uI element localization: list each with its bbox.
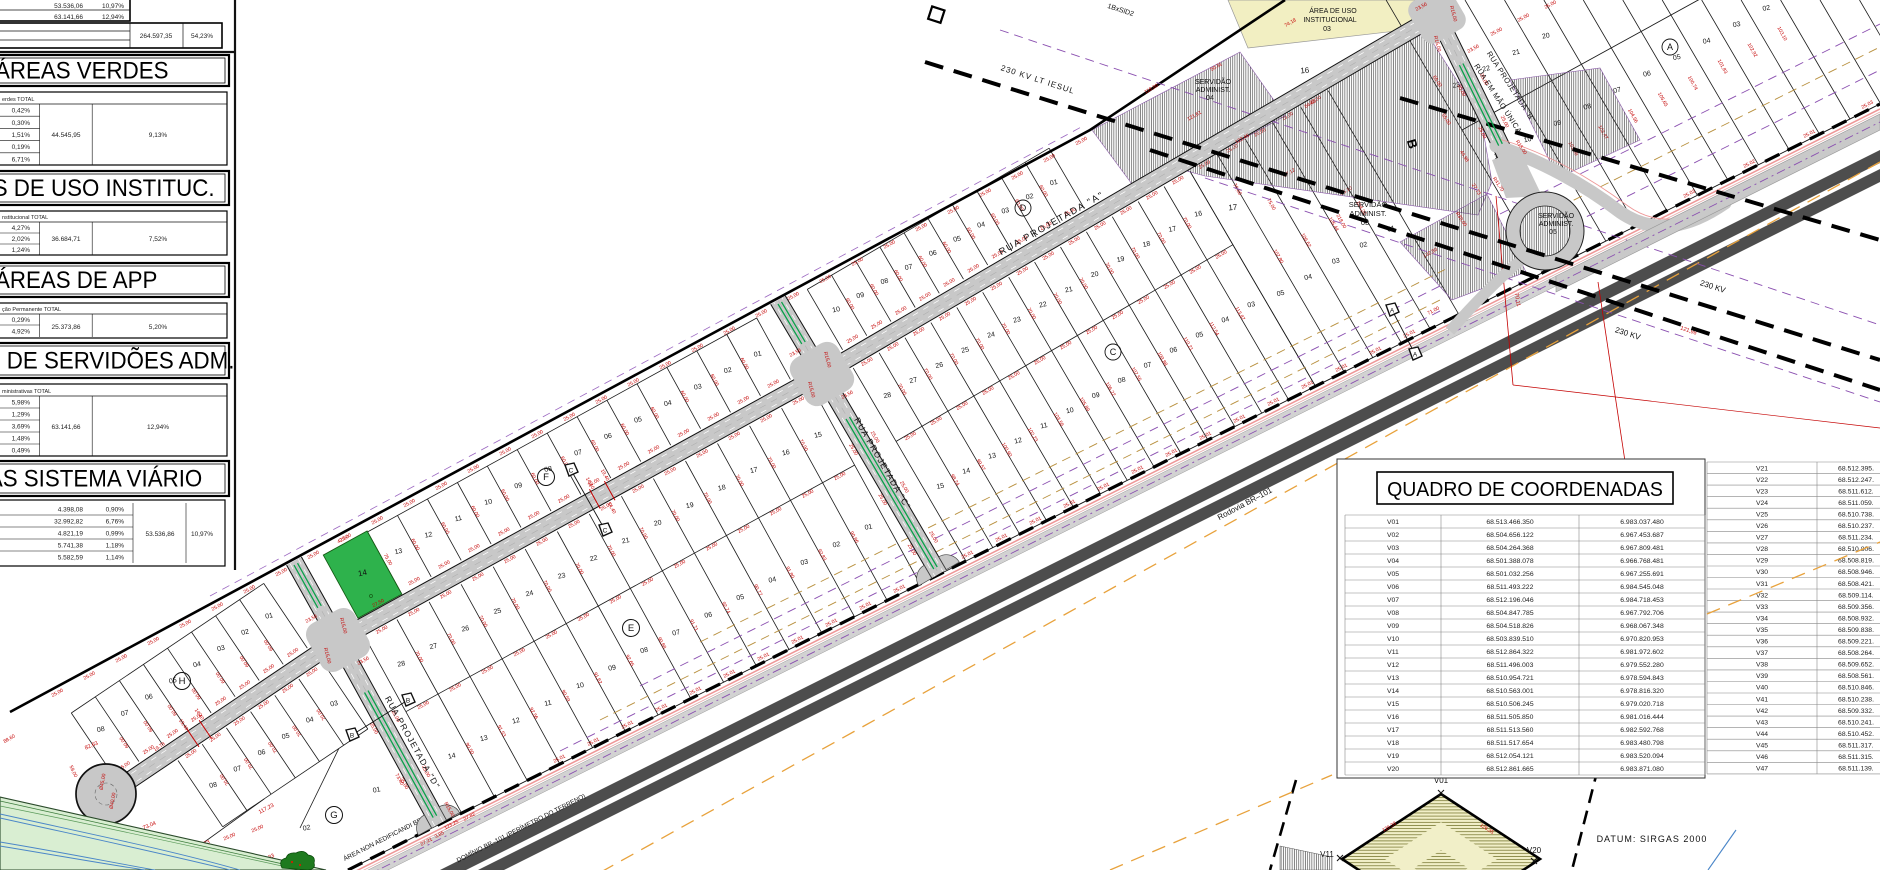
svg-text:32.992,82: 32.992,82: [54, 519, 83, 526]
svg-text:6.968.067.348: 6.968.067.348: [1620, 623, 1664, 630]
svg-text:6.966.768.481: 6.966.768.481: [1620, 558, 1664, 565]
svg-text:05: 05: [1549, 229, 1557, 236]
svg-text:DATUM: SIRGAS 2000: DATUM: SIRGAS 2000: [1597, 834, 1708, 844]
svg-text:6.978.594.843: 6.978.594.843: [1620, 675, 1664, 682]
svg-text:264.597,35: 264.597,35: [140, 33, 173, 40]
svg-text:11: 11: [544, 700, 553, 708]
svg-text:68.512.395.: 68.512.395.: [1838, 465, 1874, 472]
svg-text:68.508.264.: 68.508.264.: [1838, 650, 1874, 657]
svg-text:5.741,38: 5.741,38: [58, 543, 84, 550]
svg-text:68.508.946.: 68.508.946.: [1838, 569, 1874, 576]
svg-text:V03: V03: [1387, 545, 1399, 552]
svg-text:68.512.247.: 68.512.247.: [1838, 477, 1874, 484]
svg-text:ADMINIST.: ADMINIST.: [1349, 209, 1386, 218]
svg-text:68.509.221.: 68.509.221.: [1838, 639, 1874, 646]
svg-text:68.510.954.721: 68.510.954.721: [1486, 675, 1533, 682]
svg-text:V27: V27: [1756, 535, 1768, 542]
svg-text:68.511.496.003: 68.511.496.003: [1487, 662, 1534, 669]
svg-text:68.512.054.121: 68.512.054.121: [1486, 753, 1533, 760]
svg-text:25.373,86: 25.373,86: [52, 324, 81, 331]
svg-text:3,69%: 3,69%: [12, 424, 31, 431]
svg-text:nstitucional TOTAL: nstitucional TOTAL: [2, 215, 48, 221]
svg-text:68.508.561.: 68.508.561.: [1838, 673, 1874, 680]
svg-text:C: C: [603, 528, 608, 535]
svg-text:ministrativas TOTAL: ministrativas TOTAL: [2, 389, 51, 395]
svg-text:68.511.315.: 68.511.315.: [1838, 754, 1874, 761]
svg-text:6.982.592.768: 6.982.592.768: [1620, 727, 1664, 734]
svg-text:V39: V39: [1756, 673, 1768, 680]
svg-text:QUADRO DE COORDENADAS: QUADRO DE COORDENADAS: [1387, 479, 1663, 502]
svg-text:V02: V02: [1387, 532, 1399, 539]
svg-text:B: B: [350, 733, 354, 740]
svg-text:6.979.552.280: 6.979.552.280: [1620, 662, 1664, 669]
svg-text:6.967.453.687: 6.967.453.687: [1620, 532, 1664, 539]
svg-text:10,97%: 10,97%: [191, 531, 213, 538]
svg-text:V26: V26: [1756, 523, 1768, 530]
svg-text:V06: V06: [1387, 584, 1399, 591]
svg-text:V37: V37: [1756, 650, 1768, 657]
svg-text:0,99%: 0,99%: [106, 531, 125, 538]
svg-text:V46: V46: [1756, 754, 1768, 761]
svg-text:V10: V10: [1387, 636, 1399, 643]
svg-text:ADMINIST.: ADMINIST.: [1196, 87, 1231, 94]
svg-text:68.508.421.: 68.508.421.: [1838, 581, 1874, 588]
svg-text:G: G: [330, 810, 337, 821]
svg-text:68.511.234.: 68.511.234.: [1838, 535, 1874, 542]
svg-text:V07: V07: [1387, 597, 1399, 604]
svg-text:16: 16: [1300, 66, 1310, 76]
svg-text:V35: V35: [1756, 627, 1768, 634]
svg-text:V05: V05: [1387, 571, 1399, 578]
svg-text:V16: V16: [1387, 714, 1399, 721]
svg-text:68.510.738.: 68.510.738.: [1838, 512, 1874, 519]
svg-text:53.536,06: 53.536,06: [54, 3, 83, 10]
svg-text:V47: V47: [1756, 766, 1768, 773]
svg-text:36.684,71: 36.684,71: [52, 236, 81, 243]
svg-text:9,13%: 9,13%: [149, 132, 168, 139]
svg-text:6.967.792.706: 6.967.792.706: [1620, 610, 1664, 617]
svg-text:A: A: [1667, 42, 1673, 52]
svg-text:0,42%: 0,42%: [12, 108, 31, 115]
svg-text:C: C: [569, 468, 574, 475]
svg-text:68.510.238.: 68.510.238.: [1838, 696, 1874, 703]
svg-text:44.545,95: 44.545,95: [52, 132, 81, 139]
svg-text:V08: V08: [1387, 610, 1399, 617]
svg-text:ção Permanente TOTAL: ção Permanente TOTAL: [2, 307, 61, 313]
svg-text:ÁREAS DE APP: ÁREAS DE APP: [0, 266, 157, 293]
svg-text:D: D: [1020, 203, 1027, 213]
svg-text:V19: V19: [1387, 753, 1399, 760]
svg-text:V01: V01: [1387, 519, 1399, 526]
svg-text:V23: V23: [1756, 488, 1768, 495]
svg-text:53.536,86: 53.536,86: [146, 531, 175, 538]
svg-text:V20: V20: [1387, 766, 1399, 773]
svg-text:6,76%: 6,76%: [106, 519, 125, 526]
svg-text:V14: V14: [1387, 688, 1399, 695]
svg-text:F: F: [543, 472, 549, 483]
svg-text:68.511.612.: 68.511.612.: [1838, 488, 1874, 495]
svg-text:68.511.505.850: 68.511.505.850: [1487, 714, 1534, 721]
svg-text:63.141,66: 63.141,66: [54, 14, 83, 21]
svg-text:5,98%: 5,98%: [12, 400, 31, 407]
svg-text:68.511.513.560: 68.511.513.560: [1487, 727, 1534, 734]
svg-text:E: E: [628, 623, 634, 634]
svg-text:V30: V30: [1756, 569, 1768, 576]
svg-text:6.970.820.953: 6.970.820.953: [1620, 636, 1664, 643]
svg-text:V13: V13: [1387, 675, 1399, 682]
svg-text:03: 03: [1323, 26, 1331, 33]
svg-text:V31: V31: [1756, 581, 1768, 588]
svg-text:INSTITUCIONAL: INSTITUCIONAL: [1303, 17, 1356, 24]
svg-text:6.981.016.444: 6.981.016.444: [1620, 714, 1664, 721]
svg-text:68.504.264.368: 68.504.264.368: [1486, 545, 1533, 552]
svg-text:V34: V34: [1756, 615, 1768, 622]
svg-text:ADMINIST.: ADMINIST.: [1539, 221, 1574, 228]
svg-text:V36: V36: [1756, 639, 1768, 646]
svg-text:V11: V11: [1320, 850, 1334, 859]
svg-text:V25: V25: [1756, 512, 1768, 519]
svg-text:6.967.809.481: 6.967.809.481: [1620, 545, 1664, 552]
svg-text:V20: V20: [1527, 846, 1542, 855]
svg-text:10,97%: 10,97%: [102, 3, 124, 10]
svg-text:6.967.255.691: 6.967.255.691: [1620, 571, 1664, 578]
svg-text:H: H: [179, 676, 186, 687]
svg-text:54,23%: 54,23%: [191, 33, 213, 40]
svg-text:6.983.037.480: 6.983.037.480: [1620, 519, 1664, 526]
svg-text:68.508.819.: 68.508.819.: [1838, 558, 1874, 565]
svg-text:6.979.020.718: 6.979.020.718: [1620, 701, 1664, 708]
svg-text:68.510.241.: 68.510.241.: [1838, 719, 1874, 726]
svg-text:68.512.196.046: 68.512.196.046: [1486, 597, 1533, 604]
svg-text:4.398,08: 4.398,08: [58, 507, 84, 514]
svg-text:6.983.480.798: 6.983.480.798: [1620, 740, 1664, 747]
svg-text:V22: V22: [1756, 477, 1768, 484]
svg-text:V40: V40: [1756, 685, 1768, 692]
svg-text:0,30%: 0,30%: [12, 120, 31, 127]
svg-text:V44: V44: [1756, 731, 1768, 738]
svg-text:ÁREAS DE USO INSTITUC.: ÁREAS DE USO INSTITUC.: [0, 174, 215, 201]
svg-text:0,19%: 0,19%: [12, 144, 31, 151]
svg-text:6.984.718.453: 6.984.718.453: [1620, 597, 1664, 604]
svg-text:11: 11: [454, 515, 463, 523]
svg-text:ÁREAS VERDES: ÁREAS VERDES: [0, 57, 169, 84]
svg-text:68.510.563.001: 68.510.563.001: [1486, 688, 1533, 695]
svg-text:68.504.518.826: 68.504.518.826: [1486, 623, 1533, 630]
svg-text:B: B: [406, 698, 410, 705]
svg-text:SERVIDÃO: SERVIDÃO: [1349, 200, 1388, 209]
svg-text:68.511.493.222: 68.511.493.222: [1487, 584, 1534, 591]
svg-text:SERVIDÃO: SERVIDÃO: [1538, 211, 1575, 220]
svg-text:68.510.846.: 68.510.846.: [1838, 685, 1874, 692]
svg-text:04: 04: [1206, 95, 1214, 102]
svg-text:68.511.317.: 68.511.317.: [1838, 743, 1874, 750]
svg-text:V38: V38: [1756, 662, 1768, 669]
svg-text:4.821,19: 4.821,19: [58, 531, 84, 538]
svg-text:ÁREAS SISTEMA VIÁRIO: ÁREAS SISTEMA VIÁRIO: [0, 465, 202, 492]
svg-text:68.512.864.322: 68.512.864.322: [1486, 649, 1533, 656]
svg-text:7,52%: 7,52%: [149, 236, 168, 243]
svg-text:V43: V43: [1756, 719, 1768, 726]
svg-text:68.509.838.: 68.509.838.: [1838, 627, 1874, 634]
svg-text:68.510.452.: 68.510.452.: [1838, 731, 1874, 738]
svg-text:0,49%: 0,49%: [12, 448, 31, 455]
svg-text:2,02%: 2,02%: [12, 236, 31, 243]
svg-text:1,51%: 1,51%: [12, 132, 31, 139]
svg-text:68.508.932.: 68.508.932.: [1838, 615, 1874, 622]
svg-text:68.513.466.350: 68.513.466.350: [1486, 519, 1533, 526]
svg-text:erdes TOTAL: erdes TOTAL: [2, 97, 34, 103]
svg-text:68.509.114.: 68.509.114.: [1838, 592, 1874, 599]
svg-text:1,24%: 1,24%: [12, 247, 31, 254]
svg-text:SERVIDÃO: SERVIDÃO: [1195, 77, 1232, 86]
svg-text:11: 11: [1040, 422, 1049, 430]
svg-text:6.984.545.048: 6.984.545.048: [1620, 584, 1664, 591]
svg-text:V04: V04: [1387, 558, 1399, 565]
svg-text:68.503.839.510: 68.503.839.510: [1486, 636, 1533, 643]
svg-text:17: 17: [1228, 203, 1238, 213]
svg-text:V18: V18: [1387, 740, 1399, 747]
svg-text:68.509.652.: 68.509.652.: [1838, 662, 1874, 669]
svg-text:V33: V33: [1756, 604, 1768, 611]
svg-text:A: A: [1390, 308, 1395, 315]
svg-text:V15: V15: [1387, 701, 1399, 708]
svg-text:68.511.139.: 68.511.139.: [1838, 766, 1874, 773]
svg-text:V17: V17: [1387, 727, 1399, 734]
svg-text:1,29%: 1,29%: [12, 412, 31, 419]
svg-text:6.981.972.602: 6.981.972.602: [1620, 649, 1664, 656]
svg-text:1,14%: 1,14%: [106, 555, 125, 562]
svg-text:V42: V42: [1756, 708, 1768, 715]
svg-text:68.501.032.256: 68.501.032.256: [1486, 571, 1533, 578]
svg-text:V21: V21: [1756, 465, 1768, 472]
svg-text:6,71%: 6,71%: [12, 156, 31, 163]
svg-text:A: A: [1413, 352, 1418, 359]
svg-text:5.582,59: 5.582,59: [58, 555, 84, 562]
svg-text:4,92%: 4,92%: [12, 329, 31, 336]
svg-text:1,48%: 1,48%: [12, 436, 31, 443]
svg-text:6.983.871.080: 6.983.871.080: [1620, 766, 1664, 773]
svg-text:4,27%: 4,27%: [12, 225, 31, 232]
svg-text:0,90%: 0,90%: [106, 507, 125, 514]
svg-text:68.509.332.: 68.509.332.: [1838, 708, 1874, 715]
svg-text:68.504.656.122: 68.504.656.122: [1486, 532, 1533, 539]
svg-text:1,18%: 1,18%: [106, 543, 125, 550]
svg-text:6.983.520.094: 6.983.520.094: [1620, 753, 1664, 760]
svg-text:12,94%: 12,94%: [147, 424, 169, 431]
svg-text:63.141,66: 63.141,66: [52, 424, 81, 431]
svg-text:V24: V24: [1756, 500, 1768, 507]
svg-text:68.504.847.785: 68.504.847.785: [1486, 610, 1533, 617]
svg-text:ÁREAS DE SERVIDÕES ADM.: ÁREAS DE SERVIDÕES ADM.: [0, 346, 234, 374]
svg-text:ÁREA DE USO: ÁREA DE USO: [1309, 6, 1357, 15]
svg-text:V09: V09: [1387, 623, 1399, 630]
svg-text:V41: V41: [1756, 696, 1768, 703]
svg-text:03: 03: [1361, 218, 1369, 227]
svg-text:68.512.861.665: 68.512.861.665: [1486, 766, 1533, 773]
svg-text:5,20%: 5,20%: [149, 324, 168, 331]
svg-text:68.511.059.: 68.511.059.: [1838, 500, 1874, 507]
svg-text:68.510.506.245: 68.510.506.245: [1486, 701, 1533, 708]
svg-text:6.978.816.320: 6.978.816.320: [1620, 688, 1664, 695]
svg-text:68.501.388.078: 68.501.388.078: [1486, 558, 1533, 565]
svg-text:68.511.517.654: 68.511.517.654: [1487, 740, 1534, 747]
svg-text:V12: V12: [1387, 662, 1399, 669]
svg-text:68.510.237.: 68.510.237.: [1838, 523, 1874, 530]
svg-text:0,29%: 0,29%: [12, 317, 31, 324]
svg-text:12,94%: 12,94%: [102, 14, 124, 21]
svg-text:V11: V11: [1387, 649, 1399, 656]
svg-text:V29: V29: [1756, 558, 1768, 565]
svg-text:V45: V45: [1756, 743, 1768, 750]
svg-text:68.509.356.: 68.509.356.: [1838, 604, 1874, 611]
svg-text:V28: V28: [1756, 546, 1768, 553]
svg-text:C: C: [1110, 347, 1117, 357]
